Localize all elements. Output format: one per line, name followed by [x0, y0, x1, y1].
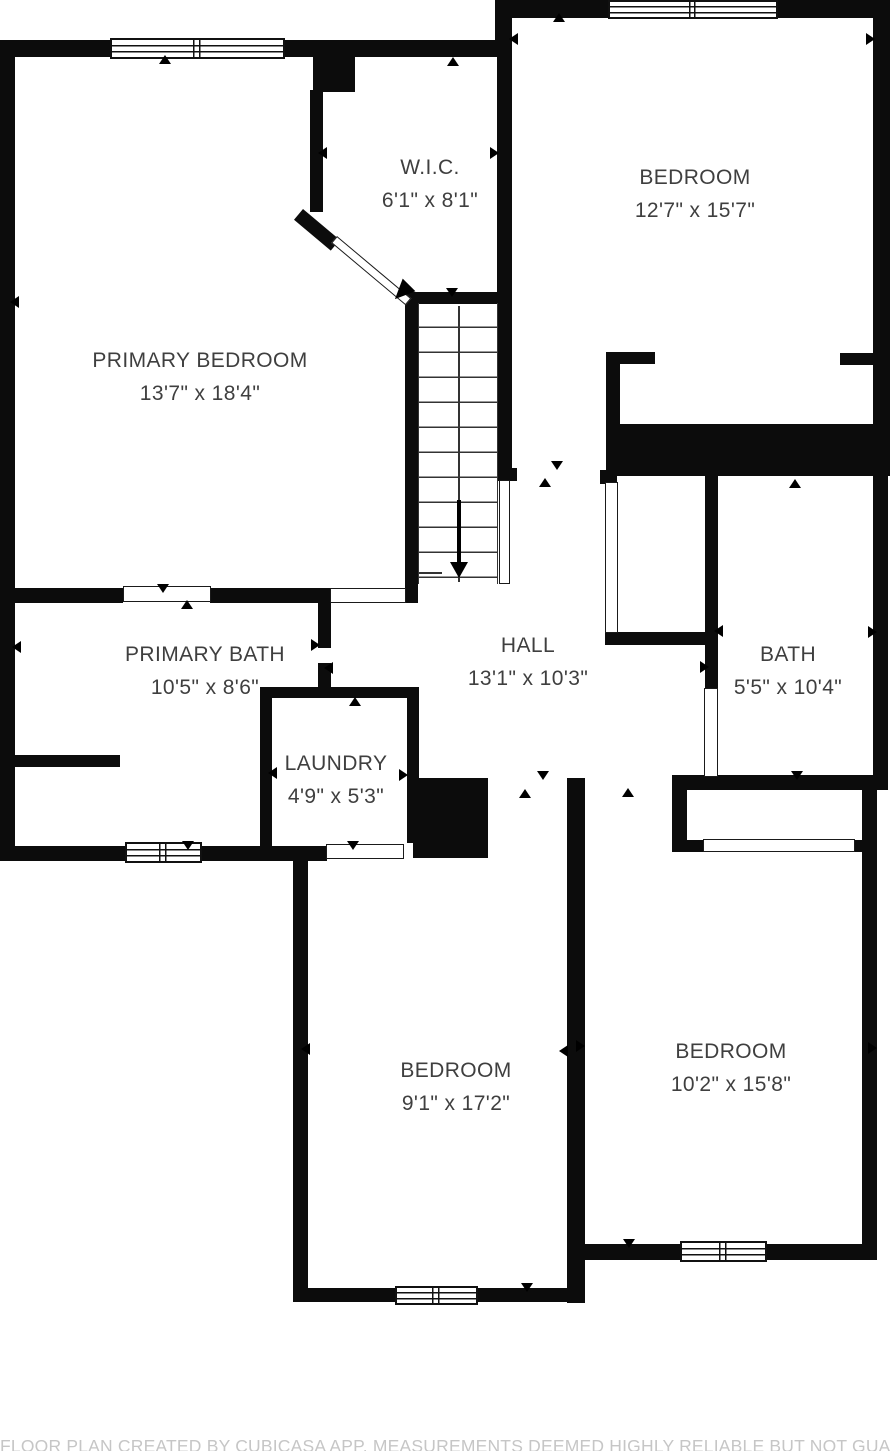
- room-name: BEDROOM: [635, 161, 755, 194]
- wall-tick-icon: [509, 33, 518, 45]
- wall: [840, 353, 875, 365]
- window: [395, 1286, 478, 1305]
- wall-tick-icon: [268, 767, 277, 779]
- door-swing-arrow: [324, 662, 333, 674]
- closet-slider-door: [703, 839, 855, 852]
- window-tick-icon: [447, 57, 459, 66]
- wall-tick-icon: [866, 33, 875, 45]
- door-swing-arrow: [446, 288, 458, 297]
- window: [110, 38, 285, 59]
- room-dimensions: 6'1" x 8'1": [382, 184, 478, 217]
- wall: [0, 40, 15, 861]
- door-swing-arrow: [519, 789, 531, 798]
- wall: [0, 846, 125, 861]
- room-label-laundry: LAUNDRY 4'9" x 5'3": [285, 747, 388, 813]
- wall: [705, 473, 718, 688]
- room-name: BEDROOM: [671, 1035, 791, 1068]
- wall: [605, 632, 718, 645]
- door-swing-arrow: [181, 600, 193, 609]
- door-swing-arrow: [789, 479, 801, 488]
- wall-tick-icon: [576, 1040, 585, 1052]
- wall: [15, 755, 120, 767]
- room-label-primary-bedroom: PRIMARY BEDROOM 13'7" x 18'4": [92, 344, 307, 410]
- wall: [313, 55, 355, 92]
- wall: [405, 293, 418, 603]
- wall: [210, 588, 330, 603]
- door-opening: [704, 688, 718, 777]
- disclaimer-text: FLOOR PLAN CREATED BY CUBICASA APP. MEAS…: [0, 1436, 890, 1451]
- wall: [873, 14, 890, 476]
- wall: [497, 55, 512, 468]
- stair-edge-line: [418, 572, 442, 574]
- wall-tick-icon: [301, 1043, 310, 1055]
- room-dimensions: 10'5" x 8'6": [125, 671, 285, 704]
- room-label-bedroom-bottom-right: BEDROOM 10'2" x 15'8": [671, 1035, 791, 1101]
- window-tick-icon: [553, 13, 565, 22]
- wall: [606, 424, 890, 476]
- door-swing-arrow: [622, 788, 634, 797]
- room-dimensions: 12'7" x 15'7": [635, 194, 755, 227]
- wall: [767, 1244, 877, 1260]
- floor-plan: PRIMARY BEDROOM 13'7" x 18'4" W.I.C. 6'1…: [0, 0, 890, 1451]
- door-swing-arrow: [700, 661, 709, 673]
- stair-direction-arrow: [450, 562, 468, 578]
- room-label-primary-bath: PRIMARY BATH 10'5" x 8'6": [125, 638, 285, 704]
- room-label-bedroom-top-right: BEDROOM 12'7" x 15'7": [635, 161, 755, 227]
- door-swing-arrow: [311, 639, 320, 651]
- wall-tick-icon: [868, 1042, 877, 1054]
- window-tick-icon: [623, 1239, 635, 1248]
- wall: [293, 1288, 395, 1302]
- wall-tick-icon: [12, 641, 21, 653]
- wall: [672, 775, 877, 790]
- room-dimensions: 5'5" x 10'4": [734, 671, 842, 704]
- door-opening: [330, 588, 406, 603]
- wall: [0, 588, 123, 603]
- door-opening: [326, 844, 404, 859]
- room-name: PRIMARY BATH: [125, 638, 285, 671]
- door-opening: [605, 482, 618, 633]
- door-swing-arrow: [791, 771, 803, 780]
- room-dimensions: 9'1" x 17'2": [400, 1087, 511, 1120]
- room-name: BATH: [734, 638, 842, 671]
- room-name: PRIMARY BEDROOM: [92, 344, 307, 377]
- door-swing-arrow: [537, 771, 549, 780]
- wall-tick-icon: [318, 147, 327, 159]
- window: [680, 1241, 767, 1262]
- wall: [495, 0, 512, 57]
- window-tick-icon: [159, 55, 171, 64]
- room-label-bedroom-bottom-left: BEDROOM 9'1" x 17'2": [400, 1054, 511, 1120]
- room-dimensions: 13'7" x 18'4": [92, 377, 307, 410]
- door-swing-arrow: [539, 478, 551, 487]
- window: [608, 0, 778, 19]
- wall: [672, 840, 703, 852]
- room-name: HALL: [468, 629, 588, 662]
- window-tick-icon: [182, 841, 194, 850]
- wall-tick-icon: [868, 626, 877, 638]
- stair-handrail: [499, 480, 510, 584]
- wall: [855, 840, 877, 852]
- room-dimensions: 13'1" x 10'3": [468, 662, 588, 695]
- room-label-wic: W.I.C. 6'1" x 8'1": [382, 151, 478, 217]
- door-swing-arrow: [347, 841, 359, 850]
- wall: [0, 40, 112, 57]
- wall-tick-icon: [10, 296, 19, 308]
- wall: [606, 352, 655, 364]
- room-name: W.I.C.: [382, 151, 478, 184]
- door-swing-arrow: [551, 461, 563, 470]
- wall: [862, 790, 877, 1256]
- wall: [293, 852, 308, 1302]
- door-swing-arrow: [714, 625, 723, 637]
- room-label-hall: HALL 13'1" x 10'3": [468, 629, 588, 695]
- room-dimensions: 4'9" x 5'3": [285, 780, 388, 813]
- door-swing-arrow: [349, 697, 361, 706]
- room-label-bath: BATH 5'5" x 10'4": [734, 638, 842, 704]
- wall-tick-icon: [559, 1045, 568, 1057]
- wall-tick-icon: [490, 147, 499, 159]
- wall: [413, 778, 488, 858]
- window-tick-icon: [521, 1283, 533, 1292]
- wall-tick-icon: [399, 769, 408, 781]
- stair-direction-arrow: [457, 500, 461, 564]
- door-swing-arrow: [157, 584, 169, 593]
- room-name: LAUNDRY: [285, 747, 388, 780]
- room-name: BEDROOM: [400, 1054, 511, 1087]
- room-dimensions: 10'2" x 15'8": [671, 1068, 791, 1101]
